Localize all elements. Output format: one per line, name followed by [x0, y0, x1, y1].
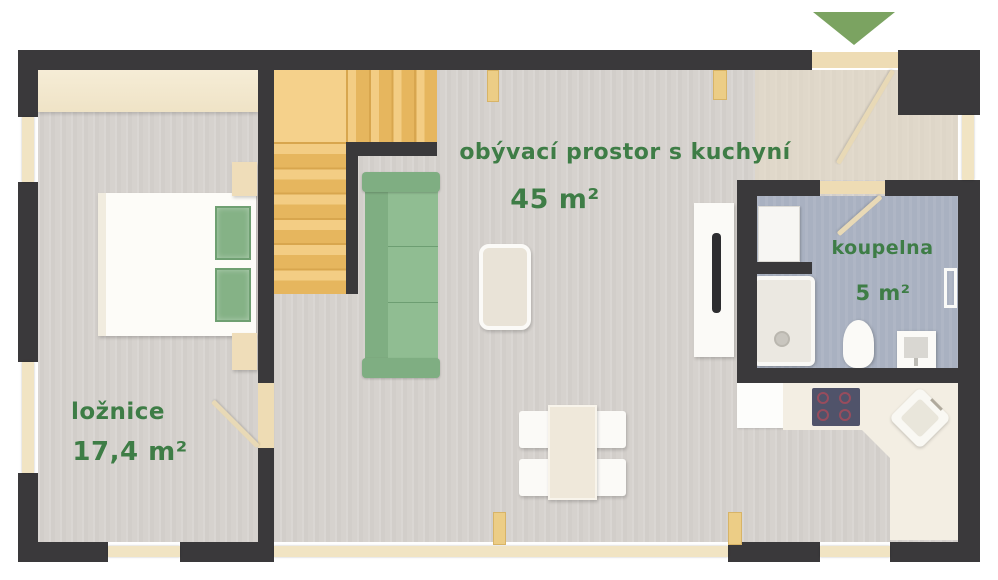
wall-bottom [18, 542, 108, 562]
wooden-post [493, 512, 506, 545]
entrance-door [812, 52, 898, 68]
nightstand [232, 162, 257, 196]
entrance-arrow-icon [813, 12, 895, 45]
wall-left [18, 50, 38, 117]
wall-bathroom-left [737, 180, 757, 383]
window [820, 546, 890, 557]
wall-top [18, 50, 812, 70]
wall-bathroom-top [885, 180, 958, 196]
wall-bottom [728, 542, 820, 562]
wall-bedroom [258, 70, 274, 383]
wall-bathroom-top [737, 180, 820, 196]
pillow [215, 206, 251, 260]
faucet-icon [914, 358, 918, 366]
window [108, 546, 180, 557]
fridge [737, 383, 783, 428]
stairs-upper-run [346, 70, 437, 142]
tv [712, 233, 721, 313]
wall-top-right-corner [898, 50, 980, 115]
floor-plan: obývací prostor s kuchyní 45 m² ložnice … [0, 0, 998, 580]
cooktop [812, 388, 860, 426]
shower [753, 276, 815, 366]
sofa [362, 172, 440, 378]
shower-drain-icon [774, 331, 790, 347]
wall-bottom-right-corner [890, 542, 980, 562]
dining-table [548, 405, 597, 500]
bedroom-door [258, 383, 274, 448]
wall-bathroom-stub [737, 262, 812, 274]
wall-staircase [346, 142, 437, 156]
nightstand [232, 333, 257, 370]
wardrobe [38, 68, 258, 112]
window [22, 362, 34, 473]
room-area-living: 45 m² [495, 185, 615, 215]
towel-radiator [944, 268, 957, 308]
wooden-post [728, 512, 742, 545]
wall-staircase [346, 142, 358, 294]
window [962, 115, 974, 180]
wooden-post [713, 70, 727, 100]
window [22, 117, 34, 182]
wall-right [958, 180, 980, 542]
room-area-bathroom: 5 m² [838, 282, 928, 305]
coffee-table [479, 244, 531, 330]
wooden-post [487, 70, 499, 102]
toilet [843, 320, 874, 368]
wall-left [18, 182, 38, 362]
window [274, 546, 728, 557]
room-label-living: obývací prostor s kuchyní [440, 141, 810, 165]
washing-machine [758, 206, 800, 262]
room-label-bathroom: koupelna [815, 238, 950, 259]
room-area-bedroom: 17,4 m² [55, 438, 205, 467]
bathroom-sink [897, 331, 936, 368]
wall-bathroom-bottom [737, 368, 980, 383]
wall-bottom [180, 542, 274, 562]
stair-landing [274, 70, 346, 142]
room-label-bedroom: ložnice [58, 400, 178, 425]
stairs-lower-run [274, 142, 346, 294]
wall-bedroom [258, 448, 274, 542]
bathroom-door [820, 181, 885, 194]
pillow [215, 268, 251, 322]
